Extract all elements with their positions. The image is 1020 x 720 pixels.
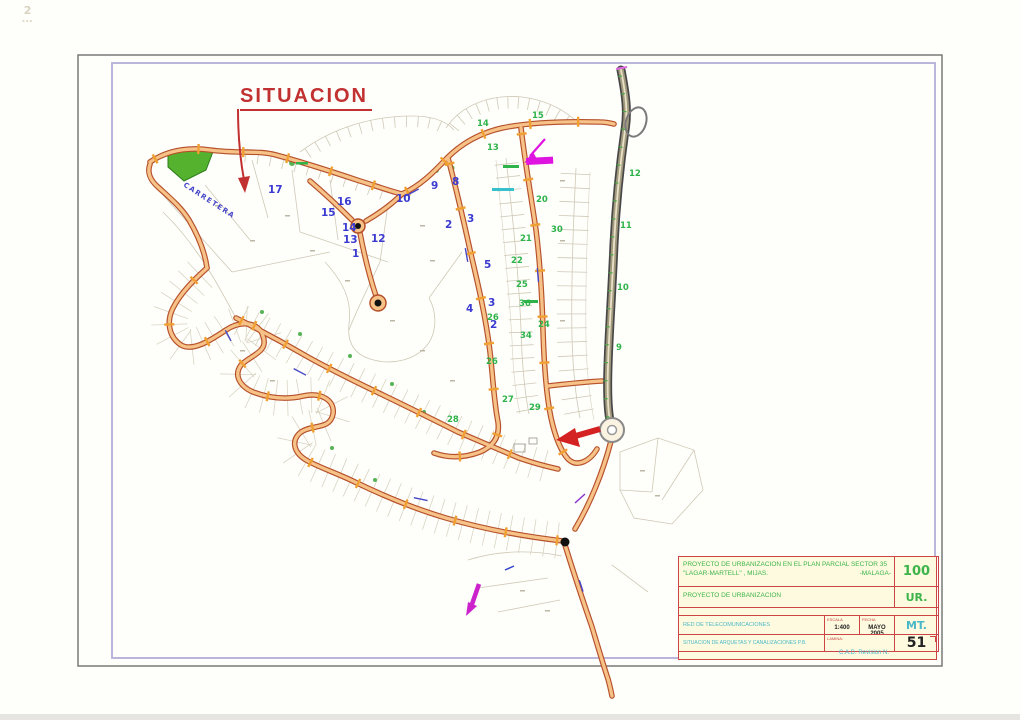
- tick-mark: [489, 389, 499, 390]
- tick-mark: [497, 98, 499, 110]
- parcel-number-blue: 9: [431, 180, 438, 192]
- plan-sheet: CARRETERA 171615141312110982354321211109…: [0, 0, 1020, 720]
- purple-mark: [575, 494, 585, 503]
- parcel-number-green: 22: [511, 256, 523, 266]
- street-surface: [149, 164, 207, 268]
- parcel-number-blue: 5: [484, 259, 491, 271]
- road-tick-marks: [153, 76, 627, 545]
- tick-mark: [305, 148, 311, 157]
- parcel-number-blue: 10: [396, 193, 411, 205]
- parcel-number-green: 28: [447, 415, 459, 425]
- tick-mark: [530, 224, 540, 225]
- tick-mark: [621, 129, 625, 130]
- building-footprint: [529, 438, 537, 444]
- tick-mark: [418, 116, 419, 127]
- parcel-number-green: 36: [519, 299, 531, 309]
- tick-mark: [618, 76, 622, 77]
- project-name: "LAGAR-MARTELL" , MIJAS.: [683, 570, 768, 577]
- tick-mark: [372, 181, 375, 191]
- project-title-cell: PROYECTO DE URBANIZACION EN EL PLAN PARC…: [678, 556, 895, 587]
- parcel-number-blue: 12: [371, 233, 386, 245]
- green-microtext-mark: [296, 162, 308, 165]
- parcel-number-blue: 2: [445, 219, 452, 231]
- parcel-number-green: 21: [520, 234, 532, 244]
- tick-mark: [476, 297, 486, 299]
- parcel-number-blue: 17: [268, 184, 283, 196]
- tick-mark: [394, 117, 395, 128]
- tick-mark: [557, 341, 587, 342]
- tick-mark: [556, 535, 557, 545]
- parcel-number-blue: 16: [337, 196, 352, 208]
- parcel-number-blue: 1: [352, 248, 359, 260]
- sheet-number-cell: 51: [894, 634, 939, 652]
- sheet-corner-tick: [930, 636, 936, 642]
- roundabout-island: [608, 426, 617, 435]
- tick-mark: [554, 110, 560, 120]
- parcel-number-blue: 3: [467, 213, 474, 225]
- cyan-microtext-mark: [492, 188, 514, 191]
- project-line1: PROYECTO DE URBANIZACION EN EL PLAN PARC…: [683, 560, 891, 569]
- parcel-number-green: 26: [487, 313, 499, 323]
- tick-mark: [359, 123, 362, 134]
- tick-mark: [382, 118, 384, 129]
- parcel-number-green: 13: [487, 143, 499, 153]
- situacion-arrow-head: [238, 176, 250, 193]
- tick-mark: [517, 133, 527, 134]
- tick-mark: [558, 243, 588, 244]
- parcel-number-green: 26: [486, 357, 498, 367]
- magenta-bar: [526, 157, 553, 165]
- parcel-number-green: 27: [502, 395, 514, 405]
- scale-value: 1:400: [827, 625, 857, 631]
- scale-cell: ESCALA 1:400: [824, 615, 860, 635]
- page-edge-shadow: [0, 714, 1020, 720]
- tick-mark: [619, 147, 623, 148]
- project-province: -MALAGA-: [860, 569, 891, 578]
- code-mt-cell: MT.: [894, 615, 939, 635]
- sheet-number: 51: [907, 635, 926, 651]
- parcel-number-blue: 15: [321, 207, 336, 219]
- project-subtitle-cell: PROYECTO DE URBANIZACION: [678, 586, 895, 608]
- tick-mark: [267, 391, 269, 401]
- cul-de-sac-dot: [375, 300, 382, 307]
- plan-description-cell: SITUACION DE ARQUETAS Y CANALIZACIONES P…: [678, 634, 825, 652]
- tick-mark: [518, 97, 519, 109]
- parcel-number-green: 20: [536, 195, 548, 205]
- tick-mark: [476, 104, 481, 115]
- parcel-number-green: 9: [616, 343, 622, 353]
- magenta-arrow-2-shaft: [471, 584, 479, 607]
- tick-mark: [437, 121, 442, 131]
- parcel-number-blue: 3: [488, 297, 495, 309]
- tick-mark: [466, 109, 472, 119]
- tick-mark: [456, 207, 466, 209]
- date-cell: FECHA MAYO 2005: [859, 615, 895, 635]
- parcel-number-green: 15: [532, 111, 544, 121]
- parcel-number-blue: 4: [466, 303, 473, 315]
- parcel-number-green: 24: [538, 320, 550, 330]
- tick-mark: [457, 115, 465, 124]
- tick-mark: [348, 127, 352, 137]
- tick-mark: [527, 98, 529, 110]
- sheet-corner-mark: 2 ▪▪▪: [22, 6, 33, 26]
- tick-mark: [544, 407, 554, 409]
- tick-mark: [546, 105, 551, 116]
- blue-mark: [505, 566, 514, 570]
- tick-mark: [428, 118, 430, 129]
- parcel-number-green: 34: [520, 331, 532, 341]
- tick-mark: [454, 516, 457, 526]
- street-name-microtext: [225, 188, 584, 591]
- project-line2: -MALAGA- "LAGAR-MARTELL" , MIJAS.: [683, 569, 891, 578]
- magenta-arrow-2-head: [466, 602, 477, 616]
- tick-mark: [486, 100, 489, 112]
- parcel-number-green: 12: [629, 169, 641, 179]
- situacion-label: SITUACION: [240, 85, 372, 111]
- tick-mark: [535, 270, 545, 271]
- tick-mark: [286, 153, 289, 163]
- situacion-leader-line: [238, 109, 244, 180]
- tick-mark: [459, 451, 460, 461]
- cad-revision-note: C.A.D. Revision N.: [839, 650, 889, 656]
- junction-dot: [561, 538, 570, 547]
- parcel-number-green: 29: [529, 403, 541, 413]
- tick-mark: [336, 131, 340, 141]
- tick-mark: [466, 252, 476, 254]
- tick-mark: [539, 362, 549, 363]
- parcel-number-blue: 8: [452, 176, 459, 188]
- tick-mark: [325, 136, 330, 146]
- parcel-number-blue: 14: [342, 222, 357, 234]
- tick-mark: [505, 527, 507, 537]
- parcel-number-green: 25: [516, 280, 528, 290]
- date-label: FECHA: [862, 617, 876, 622]
- lamina-label: LAMINA:: [827, 636, 843, 641]
- tick-mark: [605, 417, 609, 418]
- corner-mark-subtext: ▪▪▪: [22, 16, 33, 26]
- tick-mark: [621, 94, 625, 95]
- tick-mark: [312, 423, 314, 433]
- plan-name-cell: RED DE TELECOMUNICACIONES: [678, 615, 825, 635]
- parcel-number-green: 14: [477, 119, 489, 129]
- tick-mark: [530, 119, 531, 129]
- tick-mark: [318, 391, 320, 401]
- tick-mark: [557, 258, 587, 259]
- tick-mark: [484, 343, 494, 344]
- tick-mark: [523, 179, 533, 181]
- parcel-number-green: 11: [620, 221, 632, 231]
- code-ur-cell: UR.: [894, 586, 939, 608]
- scale-label: ESCALA: [827, 617, 843, 622]
- highway: [608, 67, 651, 425]
- parcel-number-blue: 13: [343, 234, 358, 246]
- parcel-number-green: 30: [551, 225, 563, 235]
- tick-mark: [557, 272, 587, 273]
- street-surface: [565, 545, 612, 696]
- code-100-cell: 100: [894, 556, 939, 587]
- tick-mark: [371, 120, 373, 131]
- tick-mark: [315, 142, 321, 151]
- parcel-number-green: 10: [617, 283, 629, 293]
- title-block: PROYECTO DE URBANIZACION EN EL PLAN PARC…: [678, 556, 937, 660]
- green-microtext-mark: [503, 165, 519, 168]
- road-name-label: CARRETERA: [182, 181, 237, 220]
